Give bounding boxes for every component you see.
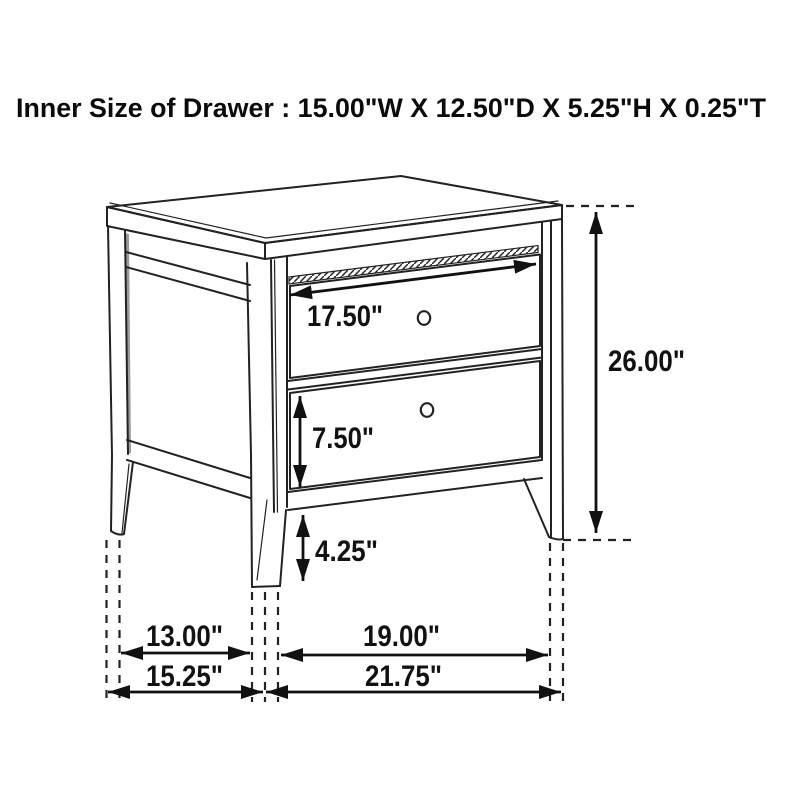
dimension-labels: 17.50" 7.50" 4.25" 26.00" 13.00" 19.00" …	[146, 300, 685, 693]
label-side-leg-inner-span: 13.00"	[146, 620, 223, 653]
lower-drawer-knob	[421, 403, 433, 417]
side-bottom-rail-lower-edge	[127, 460, 250, 498]
bottom-rail-upper-edge	[288, 460, 542, 492]
side-top-rail-lower-edge	[126, 267, 250, 301]
top-panel	[107, 176, 562, 259]
front-left-foot-bottom	[252, 586, 280, 587]
front-left-leg-outer-edge	[247, 263, 252, 587]
label-front-leg-inner-span: 19.00"	[363, 620, 440, 653]
side-bottom-rail-upper-edge	[127, 440, 250, 478]
label-drawer-width: 17.50"	[307, 300, 383, 333]
front-left-leg-corner-line	[275, 260, 278, 512]
label-overall-width: 21.75"	[365, 660, 442, 693]
left-side-panel	[108, 226, 252, 587]
label-leg-clearance-height: 4.25"	[315, 535, 378, 568]
front-right-foot-bottom	[549, 537, 563, 539]
front-left-leg-corner-edge	[271, 260, 274, 512]
page-title: Inner Size of Drawer : 15.00"W X 12.50"D…	[16, 93, 766, 123]
label-overall-height: 26.00"	[608, 345, 685, 378]
side-top-rail-upper-edge	[126, 252, 250, 285]
bottom-rail-lower-edge	[288, 478, 542, 510]
front-right-leg-outer-edge	[562, 219, 563, 539]
label-lower-drawer-height: 7.50"	[312, 422, 374, 455]
dimension-diagram-page: Inner Size of Drawer : 15.00"W X 12.50"D…	[0, 0, 800, 800]
nightstand-dimension-diagram: Inner Size of Drawer : 15.00"W X 12.50"D…	[0, 0, 800, 800]
back-leg-outer-edge	[108, 226, 112, 531]
front-left-foot-line	[257, 500, 267, 580]
upper-drawer-knob	[418, 311, 430, 325]
tabletop-edge-profile	[110, 201, 558, 238]
label-overall-depth: 15.25"	[146, 660, 223, 693]
front-left-foot-taper	[280, 510, 286, 586]
front-right-foot-taper	[524, 479, 549, 537]
